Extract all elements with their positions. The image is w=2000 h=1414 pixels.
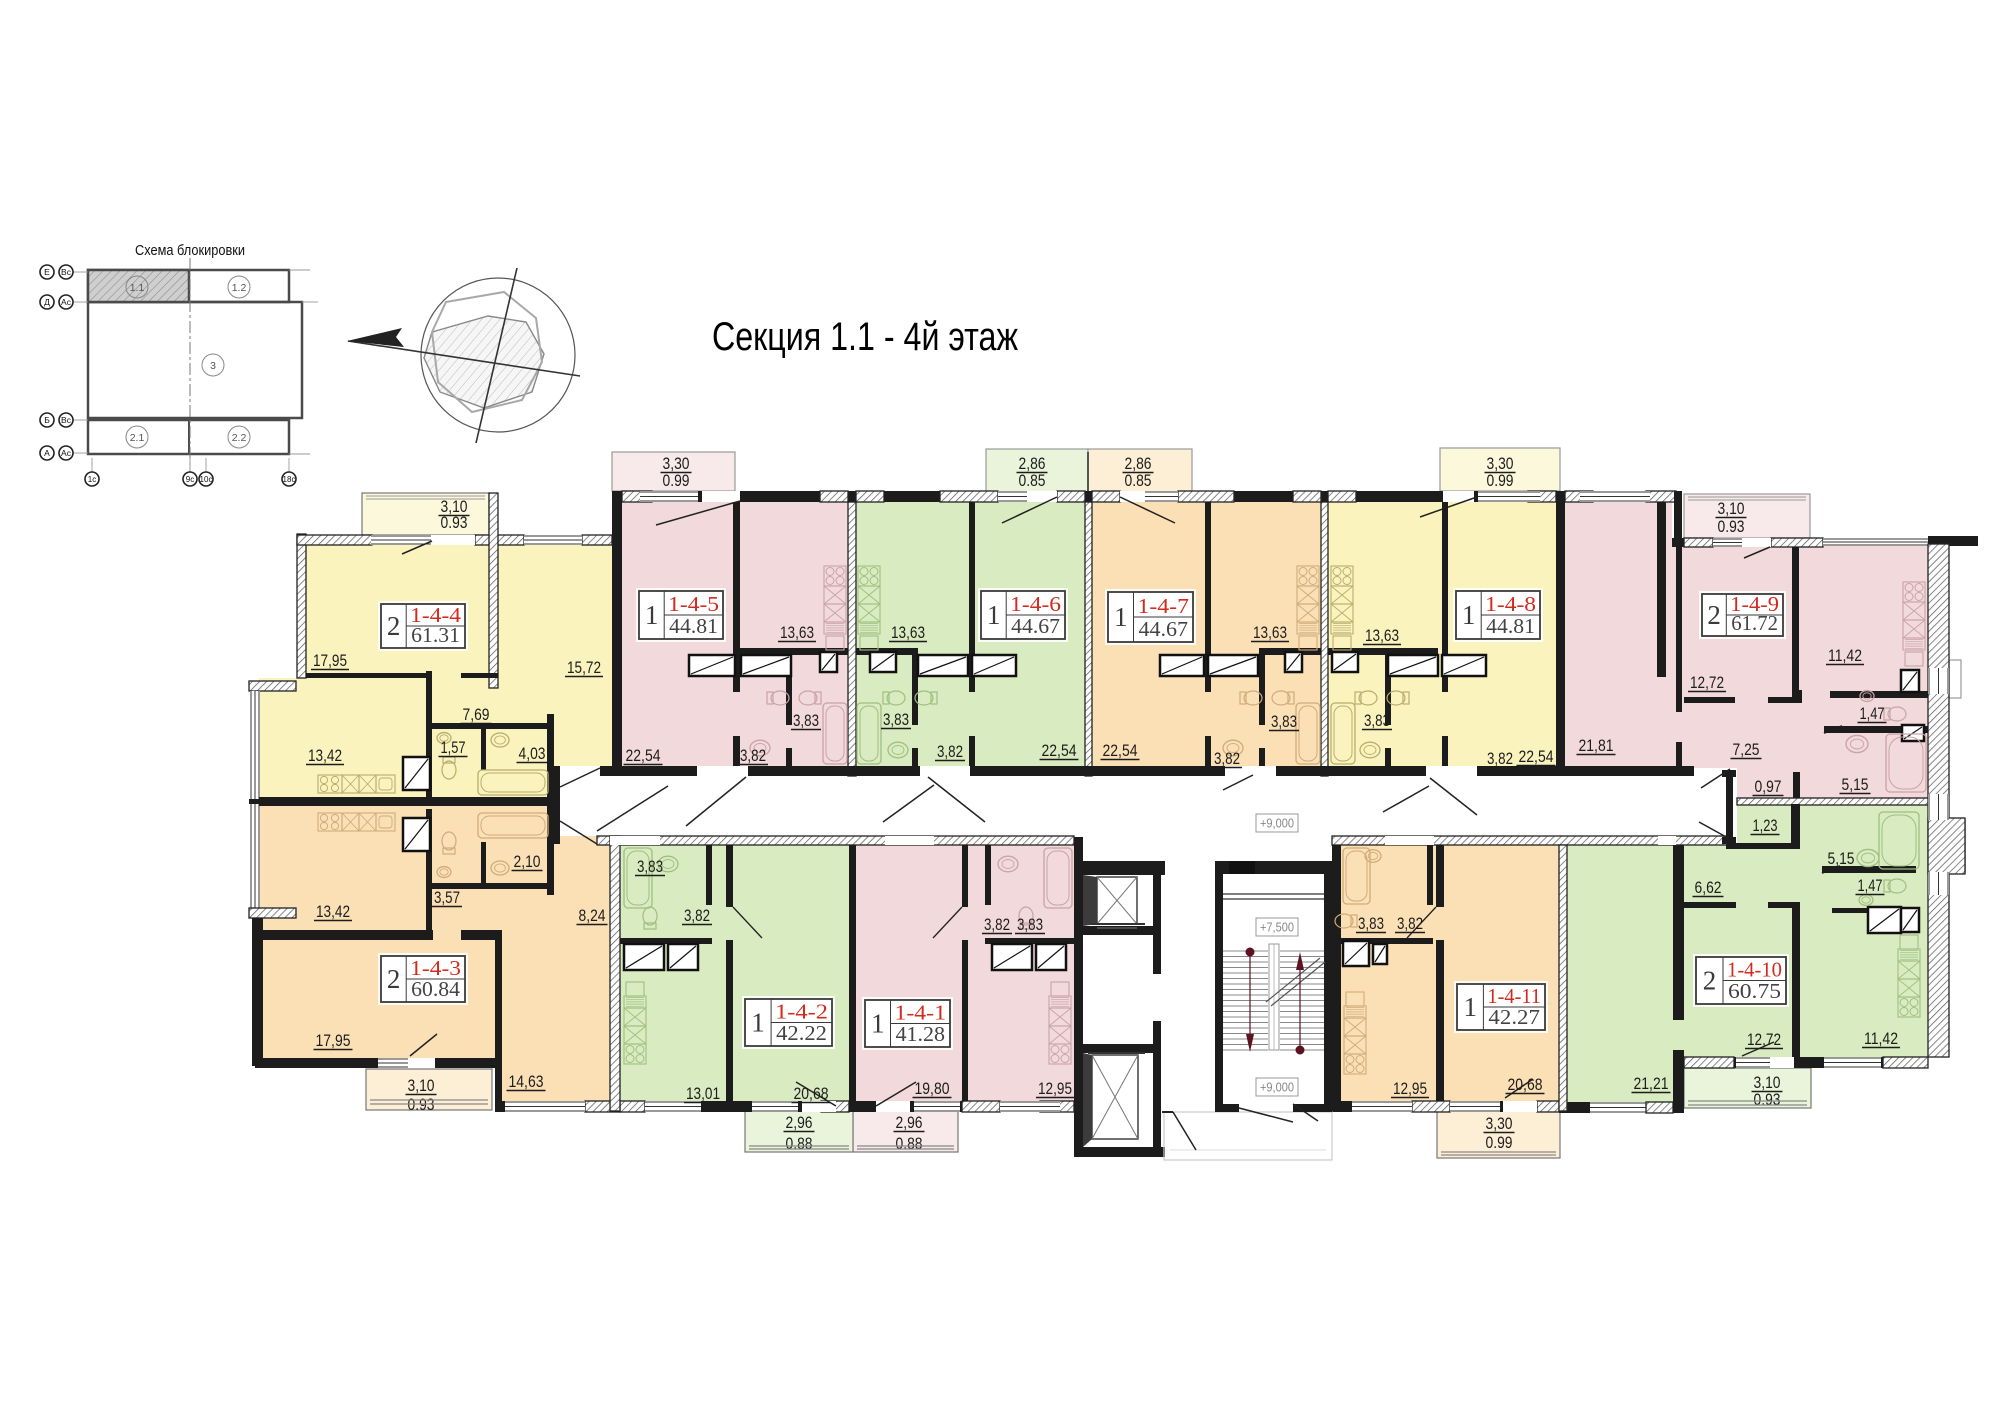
- svg-text:18с: 18с: [283, 475, 296, 484]
- svg-text:2.1: 2.1: [130, 432, 145, 444]
- svg-text:2: 2: [387, 964, 401, 994]
- svg-text:42.27: 42.27: [1488, 1005, 1540, 1029]
- svg-text:9с: 9с: [186, 475, 194, 484]
- svg-text:0.93: 0.93: [1718, 517, 1745, 536]
- svg-text:44.81: 44.81: [1486, 614, 1535, 638]
- svg-text:13,63: 13,63: [891, 623, 925, 642]
- svg-text:1-4-10: 1-4-10: [1727, 958, 1782, 982]
- svg-text:41.28: 41.28: [896, 1022, 946, 1046]
- svg-text:22,54: 22,54: [626, 746, 661, 765]
- svg-text:21,21: 21,21: [1634, 1074, 1669, 1093]
- svg-text:3,83: 3,83: [1271, 712, 1297, 731]
- svg-text:+7,500: +7,500: [1260, 920, 1294, 935]
- svg-text:А: А: [44, 448, 50, 458]
- svg-text:2,96: 2,96: [896, 1113, 923, 1132]
- svg-text:Б: Б: [44, 415, 50, 425]
- svg-text:0.99: 0.99: [1486, 1133, 1513, 1152]
- svg-text:13,63: 13,63: [1365, 626, 1399, 645]
- svg-text:3,83: 3,83: [793, 711, 819, 730]
- svg-text:1-4-2: 1-4-2: [775, 1000, 828, 1024]
- svg-text:3,83: 3,83: [883, 710, 909, 729]
- svg-text:0.88: 0.88: [896, 1134, 923, 1153]
- svg-text:3,83: 3,83: [637, 857, 663, 876]
- svg-text:2: 2: [1707, 600, 1721, 630]
- svg-text:5,15: 5,15: [1842, 775, 1869, 794]
- svg-text:Д: Д: [44, 297, 50, 307]
- svg-text:0.93: 0.93: [1754, 1090, 1781, 1109]
- svg-text:+9,000: +9,000: [1260, 1080, 1294, 1095]
- svg-text:Секция 1.1 - 4й этаж: Секция 1.1 - 4й этаж: [712, 315, 1018, 359]
- svg-text:1: 1: [1463, 992, 1477, 1022]
- svg-text:3,83: 3,83: [1358, 914, 1384, 933]
- svg-text:1: 1: [1462, 600, 1476, 630]
- svg-text:21,81: 21,81: [1579, 736, 1614, 755]
- svg-text:44.81: 44.81: [669, 614, 718, 638]
- svg-text:2: 2: [1703, 966, 1717, 996]
- svg-text:44.67: 44.67: [1011, 614, 1060, 638]
- svg-text:2,96: 2,96: [786, 1113, 813, 1132]
- svg-text:22,54: 22,54: [1519, 747, 1554, 766]
- svg-text:19,80: 19,80: [915, 1079, 950, 1098]
- svg-text:12,72: 12,72: [1690, 673, 1724, 692]
- svg-text:3,82: 3,82: [984, 915, 1010, 934]
- svg-text:15,72: 15,72: [567, 658, 601, 677]
- svg-text:1,57: 1,57: [441, 738, 466, 757]
- svg-text:3,57: 3,57: [434, 888, 460, 907]
- svg-text:3,82: 3,82: [740, 746, 766, 765]
- svg-text:20,68: 20,68: [1508, 1075, 1543, 1094]
- svg-text:0.99: 0.99: [1487, 471, 1514, 490]
- svg-text:Ас: Ас: [61, 297, 72, 307]
- svg-text:61.31: 61.31: [411, 623, 460, 647]
- svg-text:17,95: 17,95: [316, 1031, 351, 1050]
- svg-text:Вс: Вс: [61, 415, 72, 425]
- svg-text:1с: 1с: [88, 475, 96, 484]
- svg-text:44.67: 44.67: [1139, 617, 1189, 641]
- svg-text:1.2: 1.2: [232, 282, 247, 294]
- svg-text:3,83: 3,83: [1017, 915, 1043, 934]
- svg-text:1-4-8: 1-4-8: [1485, 592, 1536, 616]
- svg-text:20,68: 20,68: [794, 1084, 829, 1103]
- svg-text:1: 1: [871, 1009, 885, 1039]
- svg-text:12,95: 12,95: [1393, 1079, 1427, 1098]
- svg-text:5,15: 5,15: [1828, 849, 1855, 868]
- svg-text:60.84: 60.84: [411, 977, 460, 1001]
- svg-text:13,42: 13,42: [308, 746, 342, 765]
- svg-text:22,54: 22,54: [1103, 741, 1138, 760]
- svg-text:1: 1: [987, 600, 1001, 630]
- svg-text:12,95: 12,95: [1038, 1079, 1072, 1098]
- svg-text:3,82: 3,82: [684, 906, 710, 925]
- svg-text:3,82: 3,82: [1397, 914, 1423, 933]
- svg-text:11,42: 11,42: [1864, 1029, 1898, 1048]
- svg-text:+9,000: +9,000: [1260, 816, 1294, 831]
- svg-text:14,63: 14,63: [509, 1072, 544, 1091]
- svg-text:1-4-5: 1-4-5: [668, 592, 719, 616]
- svg-text:Е: Е: [44, 267, 50, 277]
- svg-text:1-4-7: 1-4-7: [1138, 594, 1190, 618]
- svg-text:3,83: 3,83: [1364, 711, 1390, 730]
- svg-text:8,24: 8,24: [579, 906, 606, 925]
- svg-text:61.72: 61.72: [1731, 611, 1778, 635]
- svg-text:1: 1: [751, 1008, 765, 1038]
- svg-text:7,25: 7,25: [1733, 740, 1760, 759]
- svg-text:3,82: 3,82: [937, 742, 963, 761]
- svg-text:0.99: 0.99: [663, 471, 690, 490]
- svg-text:2: 2: [387, 611, 401, 641]
- svg-text:2.2: 2.2: [232, 432, 247, 444]
- svg-text:3,82: 3,82: [1214, 749, 1240, 768]
- svg-text:0.85: 0.85: [1125, 471, 1152, 490]
- svg-text:1,47: 1,47: [1860, 704, 1885, 723]
- svg-text:42.22: 42.22: [776, 1021, 827, 1045]
- svg-text:12,72: 12,72: [1747, 1030, 1781, 1049]
- svg-text:0,97: 0,97: [1755, 777, 1782, 796]
- svg-text:Ас: Ас: [61, 448, 72, 458]
- svg-text:13,63: 13,63: [780, 623, 814, 642]
- svg-text:3,30: 3,30: [1486, 1114, 1513, 1133]
- svg-text:13,63: 13,63: [1253, 623, 1287, 642]
- svg-text:3: 3: [210, 360, 216, 372]
- svg-text:6,62: 6,62: [1695, 878, 1722, 897]
- svg-text:Вс: Вс: [61, 267, 72, 277]
- svg-text:22,54: 22,54: [1042, 741, 1077, 760]
- svg-text:11,42: 11,42: [1828, 646, 1862, 665]
- svg-text:17,95: 17,95: [313, 651, 347, 670]
- svg-text:3,82: 3,82: [1487, 749, 1513, 768]
- svg-text:1: 1: [645, 600, 659, 630]
- svg-text:0.88: 0.88: [786, 1134, 813, 1153]
- svg-text:Схема блокировки: Схема блокировки: [135, 242, 245, 259]
- svg-text:4,03: 4,03: [519, 744, 546, 763]
- svg-text:1-4-1: 1-4-1: [895, 1001, 947, 1025]
- svg-text:13,01: 13,01: [686, 1084, 720, 1103]
- svg-text:13,42: 13,42: [316, 902, 350, 921]
- svg-text:1: 1: [1114, 602, 1128, 632]
- svg-text:10с: 10с: [200, 475, 213, 484]
- svg-text:7,69: 7,69: [463, 705, 490, 724]
- svg-text:0.93: 0.93: [441, 513, 468, 532]
- svg-text:60.75: 60.75: [1728, 979, 1781, 1003]
- svg-text:1-4-6: 1-4-6: [1010, 592, 1061, 616]
- svg-text:2,10: 2,10: [514, 852, 541, 871]
- svg-text:3,10: 3,10: [1718, 499, 1745, 518]
- svg-text:1,23: 1,23: [1753, 816, 1778, 835]
- svg-text:3,10: 3,10: [408, 1076, 435, 1095]
- svg-text:0.85: 0.85: [1019, 471, 1046, 490]
- svg-text:1.1: 1.1: [130, 282, 145, 294]
- svg-text:1,47: 1,47: [1858, 876, 1883, 895]
